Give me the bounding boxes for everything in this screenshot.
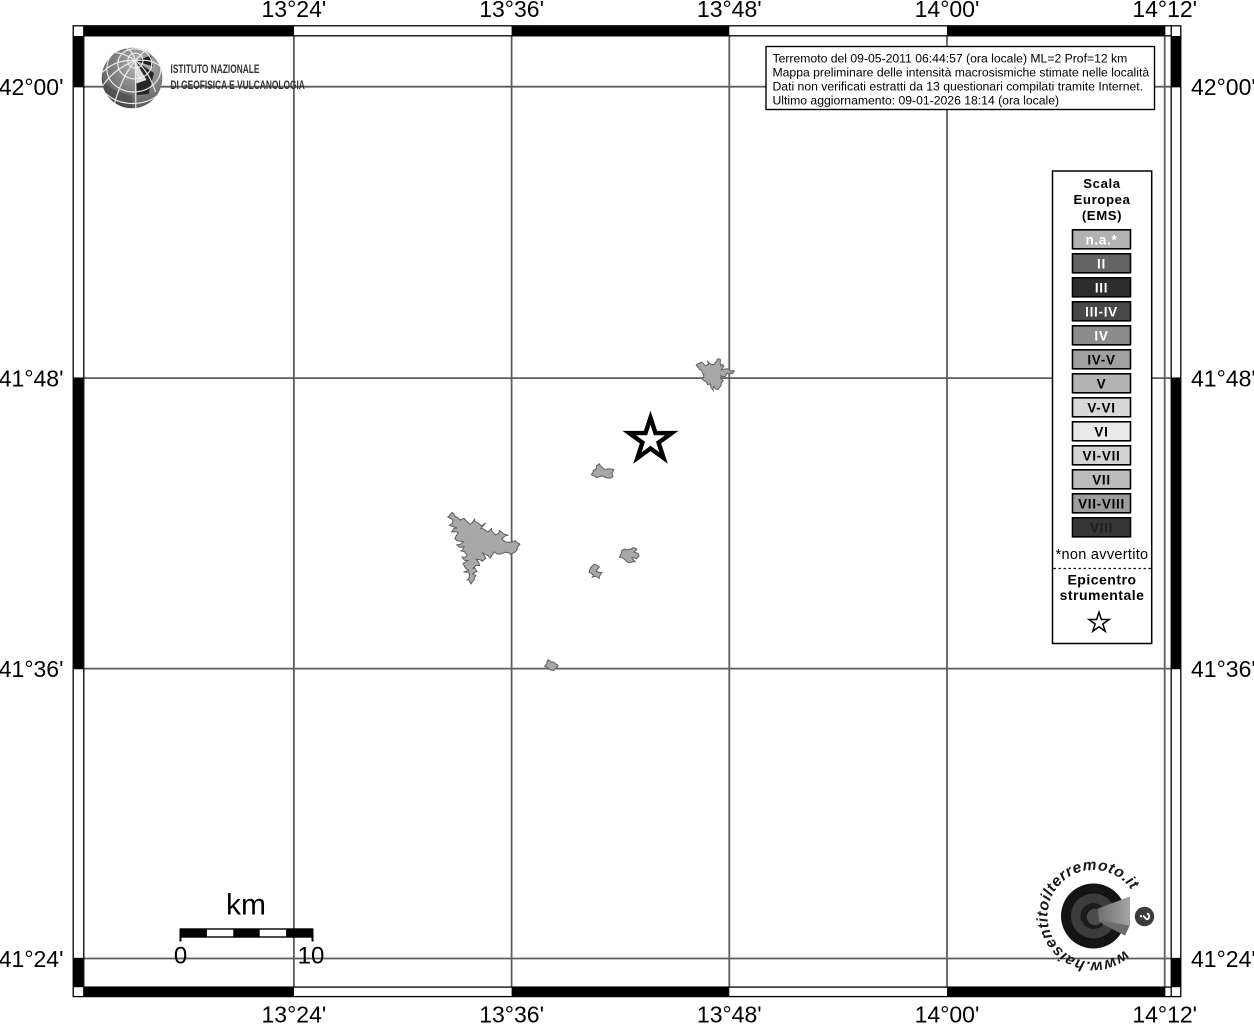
- svg-text:13°24': 13°24': [262, 1002, 327, 1024]
- svg-text:41°48': 41°48': [1191, 366, 1254, 392]
- svg-text:13°48': 13°48': [697, 1002, 762, 1024]
- svg-text:Mappa preliminare delle intens: Mappa preliminare delle intensità macros…: [773, 65, 1150, 79]
- svg-text:(EMS): (EMS): [1082, 208, 1122, 223]
- svg-text:0: 0: [174, 943, 187, 970]
- svg-text:Europea: Europea: [1074, 192, 1131, 207]
- svg-text:VI: VI: [1094, 425, 1108, 440]
- svg-text:41°48': 41°48': [0, 366, 64, 392]
- svg-text:VI-VII: VI-VII: [1083, 449, 1121, 464]
- svg-text:13°48': 13°48': [697, 0, 762, 22]
- svg-text:IV: IV: [1094, 329, 1108, 344]
- svg-text:41°36': 41°36': [1191, 656, 1254, 682]
- svg-text:VIII: VIII: [1090, 521, 1113, 536]
- svg-text:km: km: [226, 889, 266, 922]
- svg-text:14°00': 14°00': [915, 1002, 980, 1024]
- svg-text:VII-VIII: VII-VIII: [1078, 497, 1125, 512]
- svg-text:ISTITUTO NAZIONALE: ISTITUTO NAZIONALE: [171, 62, 260, 76]
- svg-text:?: ?: [1136, 912, 1153, 921]
- svg-text:DI GEOFISICA E VULCANOLOGIA: DI GEOFISICA E VULCANOLOGIA: [171, 78, 306, 92]
- svg-text:IV-V: IV-V: [1087, 353, 1115, 368]
- svg-text:Scala: Scala: [1083, 176, 1121, 191]
- svg-text:II: II: [1097, 257, 1106, 272]
- svg-text:*non avvertito: *non avvertito: [1056, 547, 1149, 563]
- svg-text:strumentale: strumentale: [1060, 587, 1145, 603]
- svg-text:III-IV: III-IV: [1085, 305, 1118, 320]
- svg-text:13°36': 13°36': [479, 1002, 544, 1024]
- svg-text:42°00': 42°00': [0, 74, 64, 100]
- svg-text:13°36': 13°36': [479, 0, 544, 22]
- svg-text:42°00': 42°00': [1191, 74, 1254, 100]
- svg-text:41°24': 41°24': [0, 946, 64, 972]
- svg-text:n.a.*: n.a.*: [1085, 233, 1117, 248]
- svg-text:14°12': 14°12': [1132, 1002, 1197, 1024]
- svg-text:14°00': 14°00': [915, 0, 980, 22]
- svg-text:41°24': 41°24': [1191, 946, 1254, 972]
- svg-text:10: 10: [298, 943, 325, 970]
- svg-text:Dati non verificati estratti d: Dati non verificati estratti da 13 quest…: [773, 80, 1144, 94]
- svg-text:13°24': 13°24': [262, 0, 327, 22]
- svg-text:III: III: [1095, 281, 1108, 296]
- svg-text:VII: VII: [1092, 473, 1111, 488]
- svg-text:Terremoto del 09-05-2011 06:44: Terremoto del 09-05-2011 06:44:57 (ora l…: [773, 51, 1128, 65]
- svg-text:14°12': 14°12': [1132, 0, 1197, 22]
- svg-text:V: V: [1097, 377, 1107, 392]
- svg-text:41°36': 41°36': [0, 656, 64, 682]
- svg-text:Epicentro: Epicentro: [1067, 572, 1136, 588]
- svg-text:V-VI: V-VI: [1087, 401, 1115, 416]
- svg-text:Ultimo aggiornamento: 09-01-20: Ultimo aggiornamento: 09-01-2026 18:14 (…: [773, 94, 1060, 108]
